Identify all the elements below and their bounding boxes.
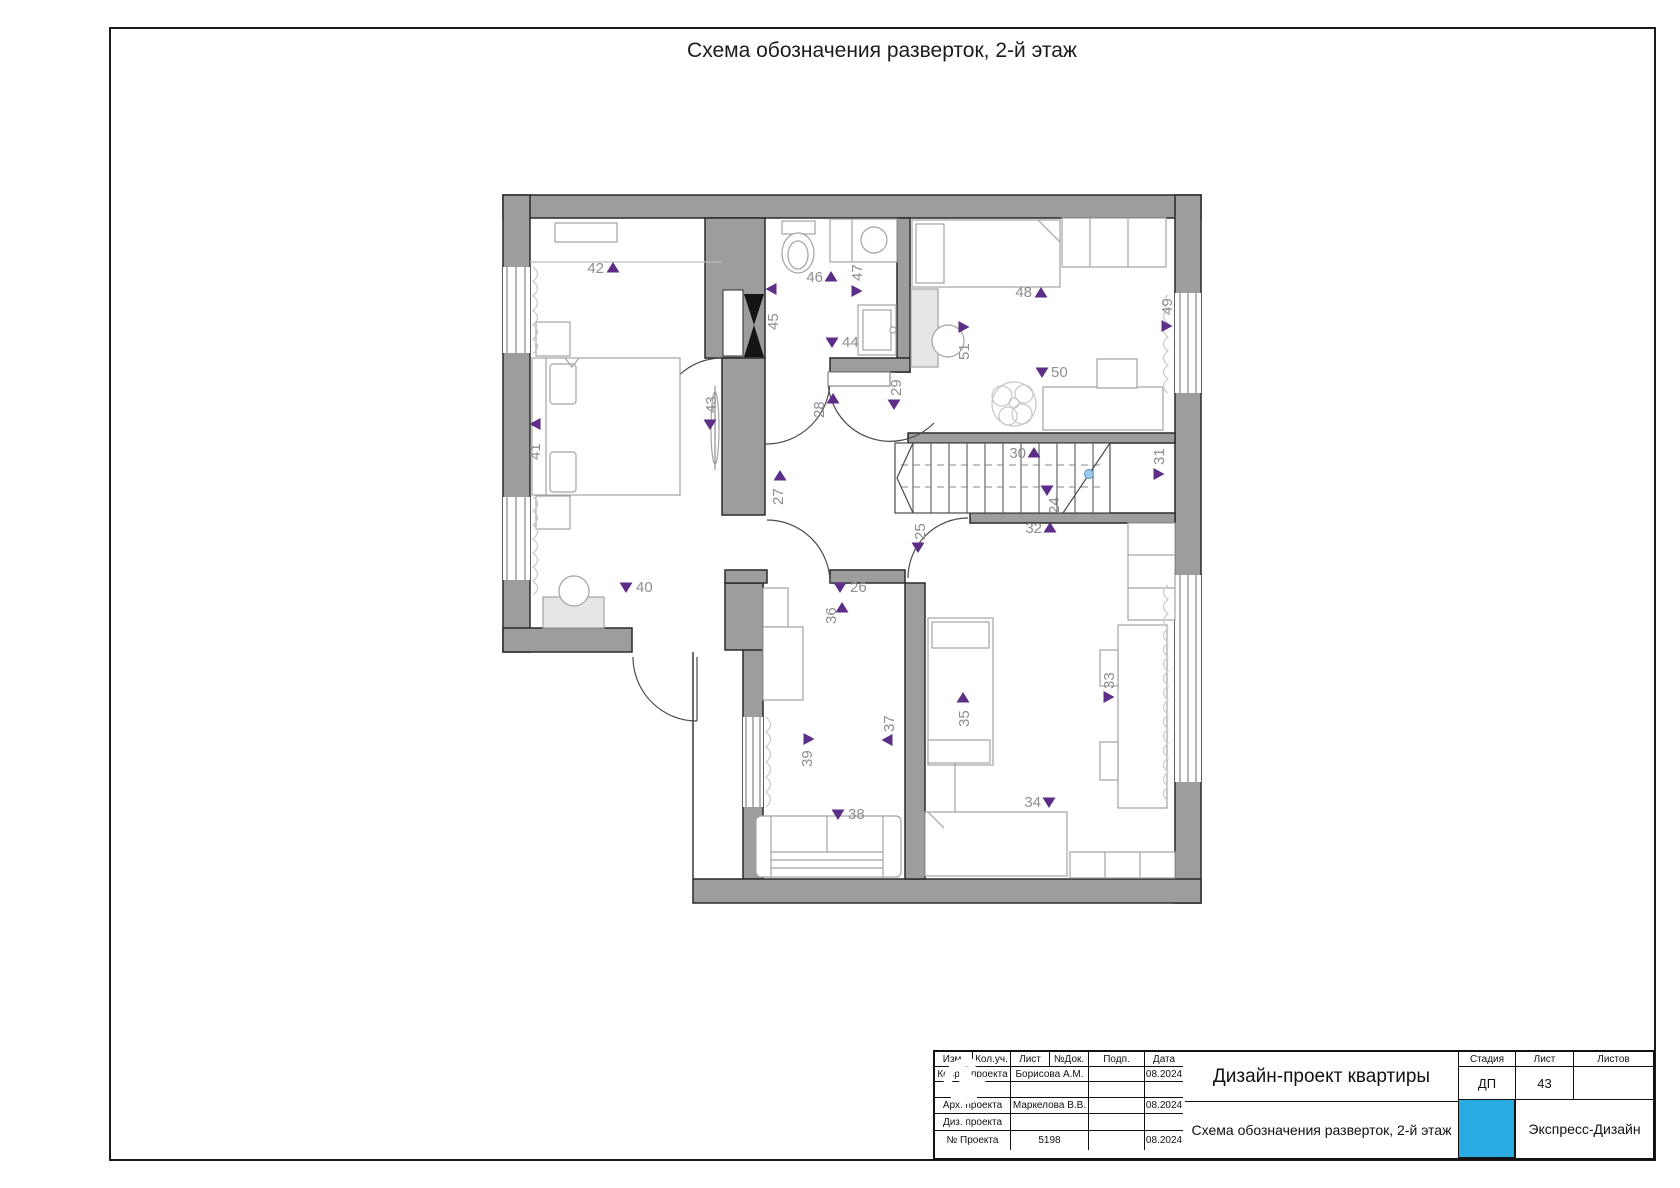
- elevation-marker-number: 25: [912, 523, 929, 540]
- company-name: Экспресс-Дизайн: [1516, 1100, 1653, 1158]
- elevation-marker-arrow: [774, 470, 787, 481]
- elevation-marker-number: 27: [770, 488, 787, 505]
- drawing-sheet: Схема обозначения разверток, 2-й этаж: [0, 0, 1680, 1188]
- elevation-marker-arrow: [852, 285, 863, 297]
- staircase: [895, 443, 1110, 513]
- col-header: №Док.: [1050, 1052, 1089, 1067]
- stage-label: Стадия: [1459, 1052, 1516, 1067]
- desk-2: [928, 740, 990, 763]
- row-date: [1145, 1114, 1183, 1131]
- row-date: 08.2024: [1145, 1067, 1183, 1082]
- row-value: [1011, 1114, 1089, 1131]
- elevation-marker-arrow: [882, 734, 893, 746]
- elevation-marker-number: 45: [765, 313, 782, 330]
- elevation-marker-number: 33: [1101, 672, 1118, 689]
- chair-3: [1100, 742, 1118, 780]
- title-block-stage: Стадия Лист Листов ДП 43 Экспресс-Дизайн: [1459, 1052, 1653, 1158]
- company-logo: [1459, 1100, 1515, 1158]
- row-sign: [1089, 1114, 1145, 1131]
- sheet-number: 43: [1516, 1067, 1574, 1100]
- floor-plan-canvas: Схема обозначения разверток, 2-й этаж: [0, 0, 1680, 1188]
- chair: [1097, 359, 1137, 388]
- stage-value: ДП: [1459, 1067, 1516, 1100]
- elevation-marker-number: 40: [636, 579, 653, 596]
- row-sign: [1089, 1098, 1145, 1114]
- elevation-marker-arrow: [1104, 691, 1115, 703]
- page-title: Схема обозначения разверток, 2-й этаж: [687, 39, 1077, 62]
- elevation-marker-arrow: [1154, 468, 1165, 480]
- sheets-label: Листов: [1574, 1052, 1653, 1067]
- elevation-marker-number: 49: [1159, 298, 1176, 315]
- row-value: 5198: [1011, 1131, 1089, 1150]
- wardrobe: [1062, 218, 1166, 267]
- elevation-marker-arrow: [1035, 287, 1048, 298]
- drawing-title: Схема обозначения разверток, 2-й этаж: [1185, 1102, 1458, 1158]
- toilet: [782, 221, 815, 273]
- row-label: Диз. проекта: [935, 1114, 1011, 1131]
- elevation-marker-number: 28: [811, 401, 828, 418]
- sheets-total: [1574, 1067, 1653, 1100]
- elevation-marker-number: 32: [1025, 520, 1042, 537]
- wardrobe: [763, 627, 803, 700]
- walls: [503, 195, 1201, 903]
- desk: [1043, 387, 1163, 430]
- plant: [992, 382, 1036, 426]
- elevation-marker-arrow: [1043, 798, 1056, 809]
- col-header: Лист: [1011, 1052, 1050, 1067]
- elevation-marker-number: 50: [1051, 364, 1068, 381]
- elevation-marker-number: 24: [1046, 497, 1063, 514]
- row-sign: [1089, 1131, 1145, 1150]
- title-block: Изм. Кол.уч. Лист №Док. Подп. Дата Коорд…: [933, 1050, 1655, 1160]
- nightstand: [536, 322, 570, 356]
- row-date: 08.2024: [1145, 1131, 1183, 1150]
- door-arc-entrance: [633, 657, 697, 721]
- elevation-marker-number: 46: [806, 269, 823, 286]
- kid-bed-horizontal: [925, 812, 1067, 876]
- cabinet: [763, 588, 788, 627]
- row-label: № Проекта: [935, 1131, 1011, 1150]
- col-header: Дата: [1145, 1052, 1183, 1067]
- elevation-marker-arrow: [1036, 368, 1049, 379]
- sofa: [756, 816, 901, 877]
- logo-arrow-icon: [935, 1052, 992, 1110]
- furniture: [530, 218, 1175, 878]
- title-block-titles: Дизайн-проект квартиры Схема обозначения…: [1185, 1052, 1459, 1158]
- single-bed: [912, 220, 1060, 287]
- elevation-marker-number: 38: [848, 806, 865, 823]
- elevation-marker-number: 39: [799, 750, 816, 767]
- cabinet: [911, 289, 938, 367]
- desk-3: [1118, 625, 1167, 808]
- elevation-marker-arrow: [826, 338, 839, 349]
- nightstand: [536, 496, 570, 529]
- double-bed: [532, 358, 680, 495]
- elevation-marker-arrow: [834, 583, 847, 594]
- elevation-marker-number: 31: [1151, 448, 1168, 465]
- elevation-marker-number: 35: [956, 710, 973, 727]
- project-title: Дизайн-проект квартиры: [1185, 1052, 1458, 1102]
- elevation-marker-number: 47: [849, 264, 866, 281]
- row-sign: [1089, 1067, 1145, 1082]
- row-sign: [1089, 1082, 1145, 1098]
- elevation-marker-number: 29: [888, 379, 905, 396]
- row-date: [1145, 1082, 1183, 1098]
- elevation-marker-number: 36: [823, 607, 840, 624]
- elevation-marker-arrow: [620, 583, 633, 594]
- elevation-markers: 2425262728293031323334353637383940414243…: [527, 260, 1176, 823]
- elevation-marker-number: 44: [842, 334, 859, 351]
- low-cabinets: [1070, 852, 1175, 878]
- washing-machine: [830, 219, 897, 262]
- sheet-label: Лист: [1516, 1052, 1574, 1067]
- elevation-marker-number: 41: [527, 443, 544, 460]
- elevation-marker-number: 43: [703, 396, 720, 413]
- elevation-marker-number: 26: [850, 579, 867, 596]
- elevation-marker-arrow: [607, 262, 620, 273]
- elevation-marker-number: 48: [1015, 284, 1032, 301]
- elevation-marker-arrow: [804, 733, 815, 745]
- stair-level-dot: [1085, 470, 1094, 479]
- door-arc-room-right: [828, 379, 934, 441]
- door-arc-lower-left-room: [767, 520, 830, 583]
- elevation-marker-arrow: [888, 400, 901, 411]
- wardrobe-2: [1128, 523, 1175, 620]
- stool: [559, 576, 589, 606]
- elevation-marker-number: 42: [587, 260, 604, 277]
- row-value: [1011, 1082, 1089, 1098]
- elevation-marker-arrow: [959, 321, 970, 333]
- sink: [858, 305, 896, 355]
- elevation-marker-number: 34: [1024, 794, 1041, 811]
- col-header: Подп.: [1089, 1052, 1145, 1067]
- logo-cell: [1459, 1100, 1516, 1158]
- elevation-marker-number: 30: [1009, 445, 1026, 462]
- door-leaf: [828, 372, 890, 386]
- row-value: Маркелова В.В.: [1011, 1098, 1089, 1114]
- row-date: 08.2024: [1145, 1098, 1183, 1114]
- elevation-marker-number: 37: [881, 715, 898, 732]
- console: [555, 223, 617, 242]
- elevation-marker-arrow: [825, 271, 838, 282]
- elevation-marker-arrow: [766, 283, 777, 295]
- row-value: Борисова А.М.: [1011, 1067, 1089, 1082]
- elevation-marker-number: 51: [956, 343, 973, 360]
